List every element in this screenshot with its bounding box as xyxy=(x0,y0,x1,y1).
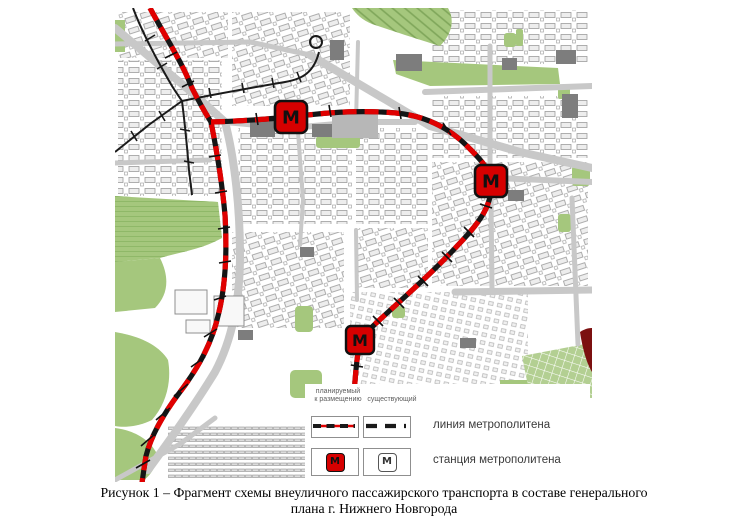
legend-label-metro-station: станция метрополитена xyxy=(433,454,561,466)
city-block xyxy=(118,60,222,196)
park xyxy=(516,29,523,46)
road xyxy=(356,230,357,300)
legend-symbol-station-existing: М xyxy=(363,448,411,476)
legend-header-planned: планируемый к размещению xyxy=(307,388,369,403)
metro-station-marker-3: М xyxy=(346,326,374,354)
building-dark xyxy=(238,330,253,340)
city-block xyxy=(356,228,428,288)
park xyxy=(558,214,571,232)
legend-symbol-line-planned xyxy=(311,416,359,438)
legend-label-metro-line: линия метрополитена xyxy=(433,419,550,431)
building-dark xyxy=(502,58,517,70)
cottage-block xyxy=(350,292,528,390)
park xyxy=(115,258,166,312)
legend-symbol-station-planned: М xyxy=(311,448,359,476)
planned-station-symbol: М xyxy=(326,453,345,472)
building-dark xyxy=(396,54,422,71)
road xyxy=(455,290,592,292)
figure-caption-line1: Рисунок 1 – Фрагмент схемы внеуличного п… xyxy=(0,485,748,501)
building-dark xyxy=(300,247,314,257)
park xyxy=(504,33,516,47)
building-dark xyxy=(556,50,576,64)
legend-header-planned-line2: к размещению xyxy=(314,396,361,403)
document-page: М М М планируемый к размещению существую… xyxy=(0,0,748,522)
building-dark xyxy=(250,121,275,137)
existing-station-symbol: М xyxy=(378,453,397,472)
road xyxy=(115,160,210,163)
park xyxy=(147,401,159,411)
station-letter: М xyxy=(352,331,368,350)
map-legend: планируемый к размещению существующий ли… xyxy=(305,384,590,482)
building-dark xyxy=(460,338,476,348)
building-dark xyxy=(508,190,524,201)
road xyxy=(495,178,592,182)
building-dark xyxy=(330,40,344,60)
forest-hatch xyxy=(352,8,452,46)
metro-station-marker-1: М xyxy=(275,101,307,133)
park xyxy=(295,306,313,332)
figure-caption-line2: плана г. Нижнего Новгорода xyxy=(0,501,748,517)
legend-header-planned-line1: планируемый xyxy=(316,388,360,395)
building-dark xyxy=(312,124,332,137)
city-block xyxy=(356,128,428,224)
planned-line-symbol xyxy=(312,417,356,435)
figure-caption: Рисунок 1 – Фрагмент схемы внеуличного п… xyxy=(0,485,748,517)
legend-symbol-line-existing xyxy=(363,416,411,438)
city-block xyxy=(232,232,344,328)
station-letter: М xyxy=(282,108,300,129)
metro-station-marker-2: М xyxy=(475,165,507,197)
building xyxy=(332,112,378,138)
building-dark xyxy=(562,94,578,118)
building-outline xyxy=(186,320,210,333)
station-letter: М xyxy=(482,172,500,193)
orchard-hatch xyxy=(115,196,222,262)
legend-header-existing: существующий xyxy=(363,396,421,404)
park xyxy=(115,332,169,427)
existing-line-symbol xyxy=(364,417,408,435)
building-outline xyxy=(175,290,207,314)
